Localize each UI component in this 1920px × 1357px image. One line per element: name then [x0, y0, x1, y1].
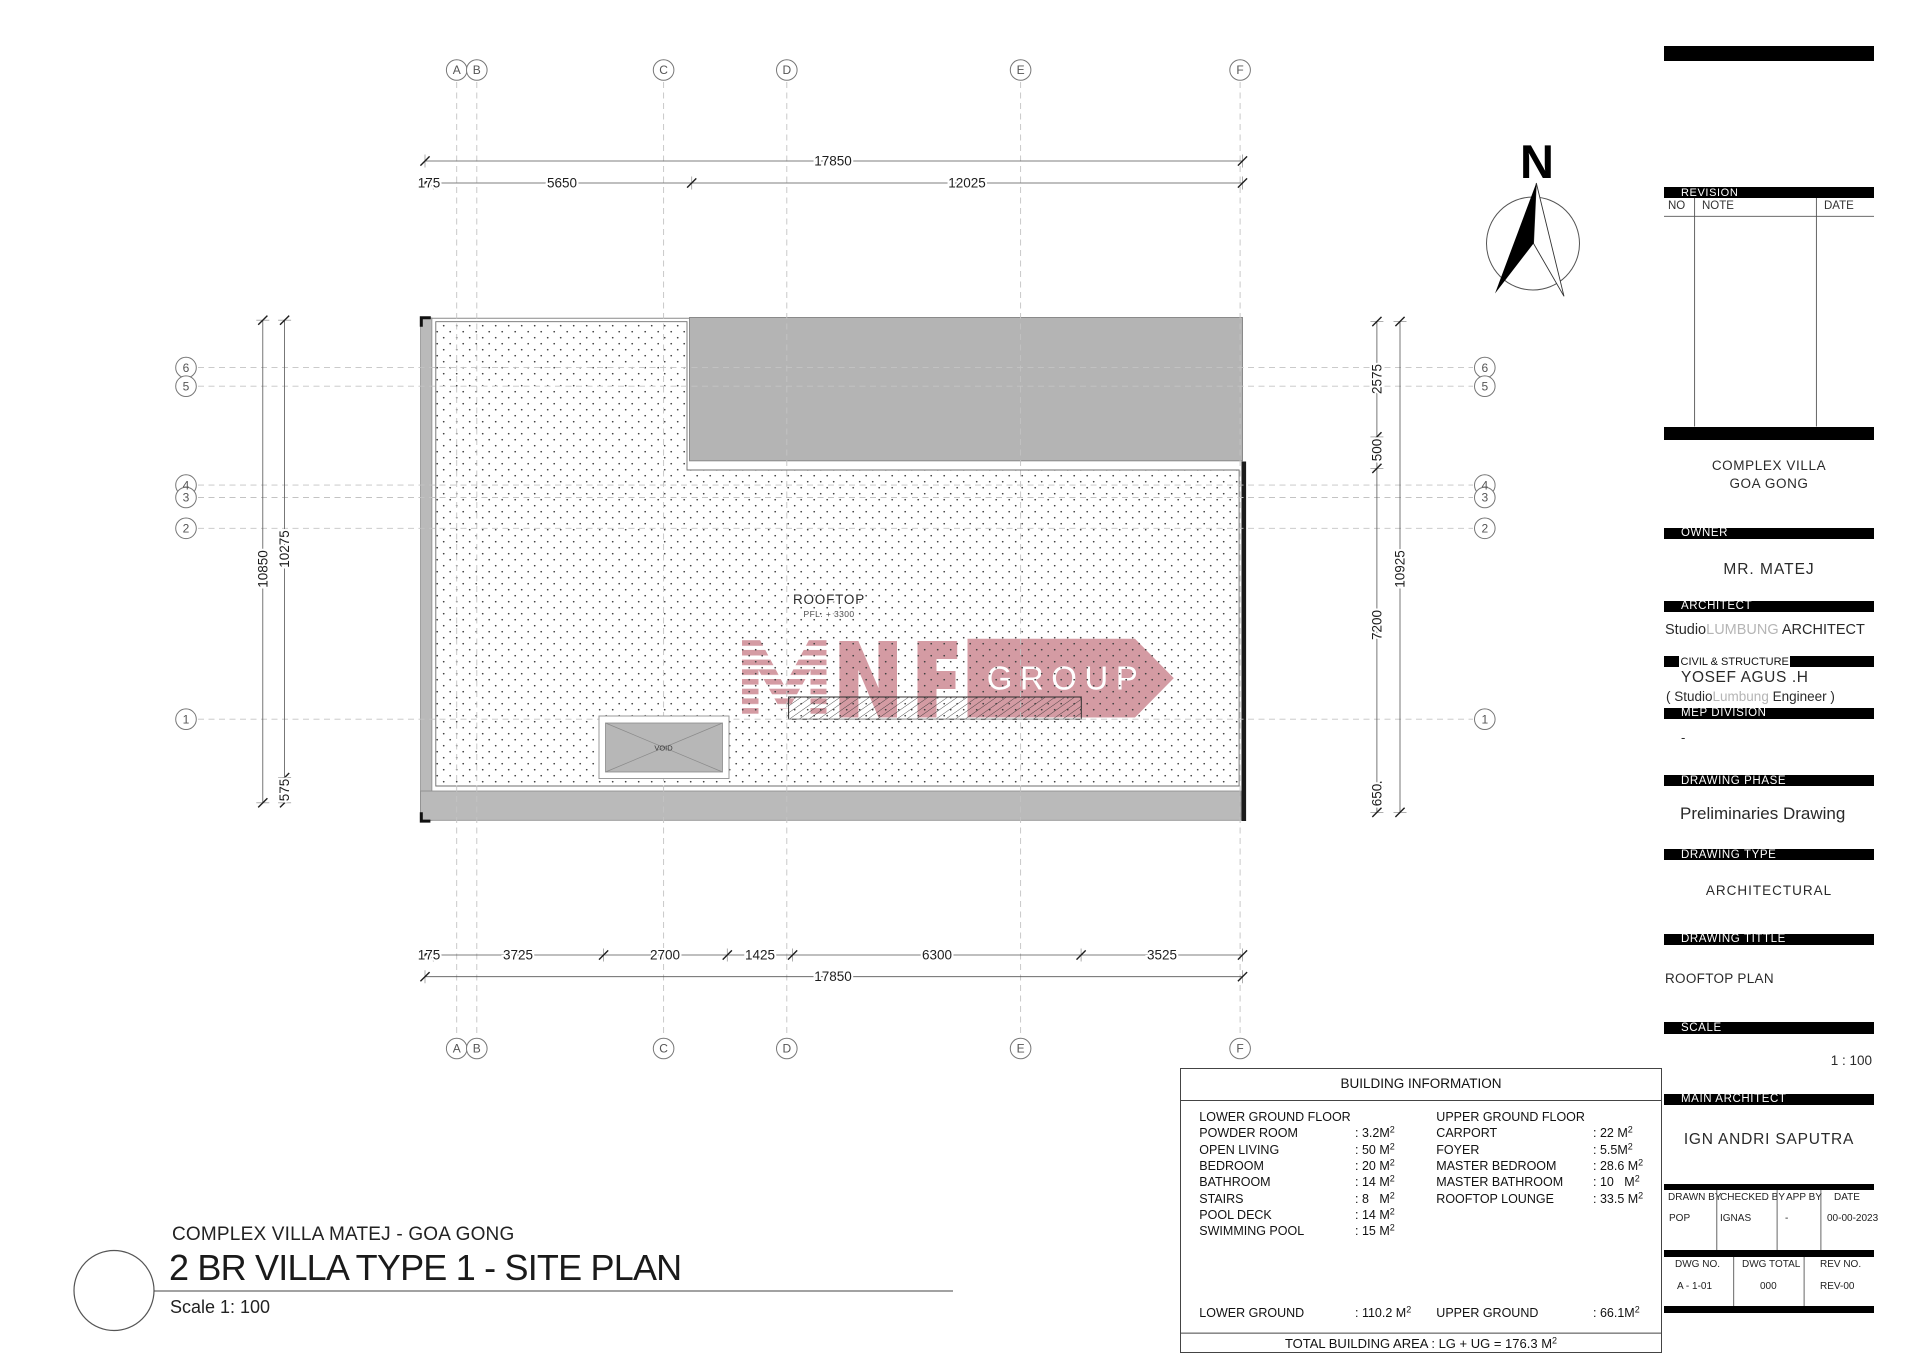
svg-text:500: 500 [1369, 439, 1384, 462]
svg-text:B: B [473, 63, 481, 77]
svg-text:1425: 1425 [745, 948, 775, 963]
svg-text:A: A [453, 63, 461, 77]
svg-text:10275: 10275 [277, 530, 292, 568]
svg-text:1: 1 [183, 712, 190, 726]
svg-text:D: D [782, 1042, 791, 1056]
svg-text:6: 6 [1481, 361, 1488, 375]
svg-text:17850: 17850 [814, 969, 852, 984]
svg-text:5: 5 [1481, 379, 1488, 393]
svg-text:3: 3 [1481, 491, 1488, 505]
svg-text:175: 175 [418, 176, 441, 191]
svg-text:D: D [782, 63, 791, 77]
svg-text:E: E [1017, 1042, 1025, 1056]
svg-text:7200: 7200 [1369, 610, 1384, 640]
svg-text:PFL. + 3300: PFL. + 3300 [804, 609, 855, 619]
svg-text:6: 6 [183, 361, 190, 375]
svg-text:3525: 3525 [1147, 948, 1177, 963]
svg-text:C: C [659, 1042, 668, 1056]
svg-text:C: C [659, 63, 668, 77]
svg-text:3725: 3725 [503, 948, 533, 963]
svg-text:N: N [1520, 135, 1554, 188]
svg-text:F: F [1236, 63, 1243, 77]
svg-text:5650: 5650 [547, 176, 577, 191]
svg-text:175: 175 [418, 948, 441, 963]
svg-text:2700: 2700 [650, 948, 680, 963]
svg-text:F: F [1236, 1042, 1243, 1056]
svg-text:6300: 6300 [922, 948, 952, 963]
svg-text:5: 5 [183, 379, 190, 393]
svg-text:ROOFTOP: ROOFTOP [793, 592, 865, 607]
svg-text:E: E [1017, 63, 1025, 77]
svg-text:1: 1 [1481, 712, 1488, 726]
svg-text:575: 575 [277, 779, 292, 802]
svg-text:2: 2 [1481, 522, 1488, 536]
svg-text:12025: 12025 [948, 176, 986, 191]
svg-text:10925: 10925 [1393, 550, 1408, 588]
svg-text:3: 3 [183, 491, 190, 505]
svg-text:2575: 2575 [1369, 364, 1384, 394]
svg-text:10850: 10850 [255, 550, 270, 588]
svg-text:VOID: VOID [654, 744, 673, 753]
svg-text:B: B [473, 1042, 481, 1056]
svg-text:A: A [453, 1042, 461, 1056]
svg-text:650: 650 [1369, 784, 1384, 807]
svg-text:2: 2 [183, 522, 190, 536]
svg-text:17850: 17850 [814, 154, 852, 169]
